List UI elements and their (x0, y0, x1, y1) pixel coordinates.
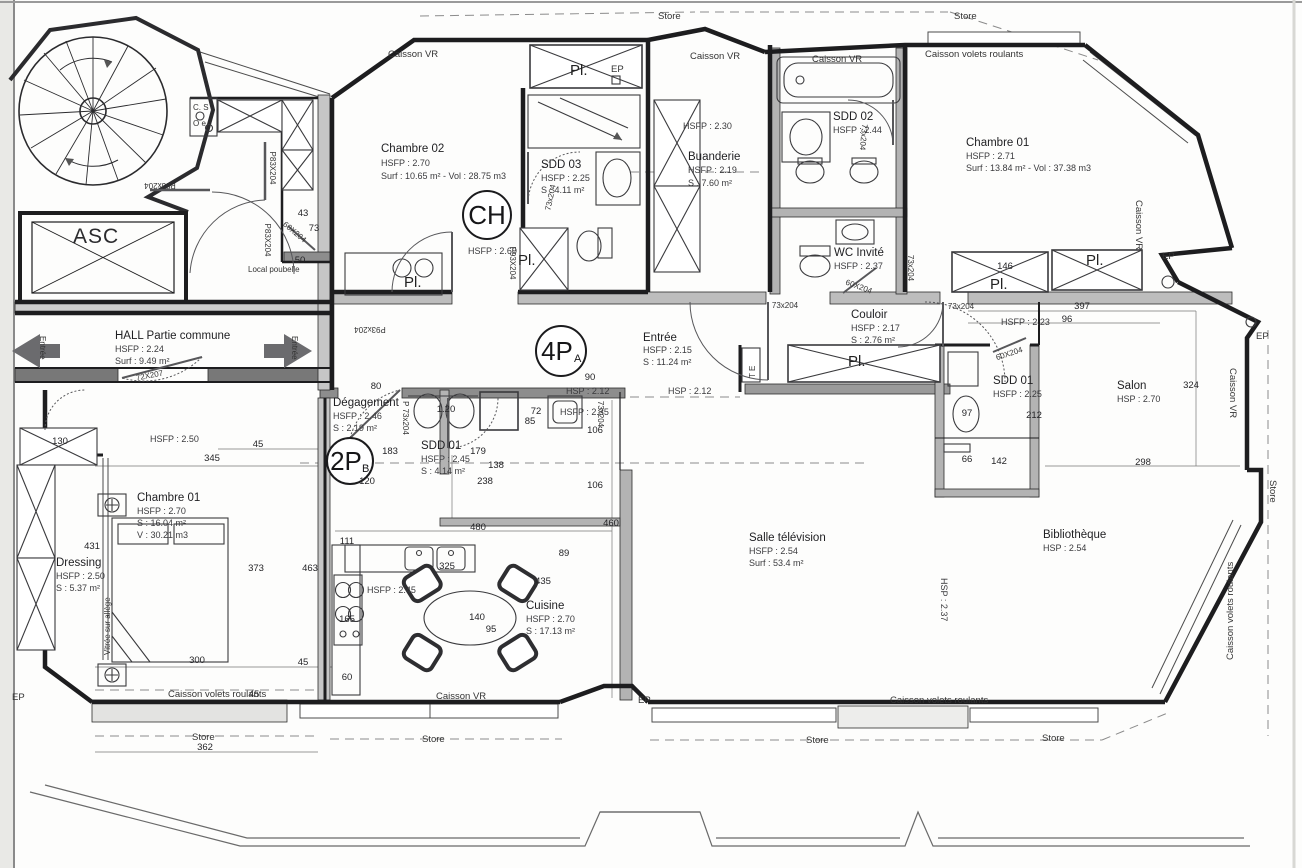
room-entree: Entrée HSFP : 2.15 S : 11.24 m² (643, 332, 692, 367)
ep-label: EP (1162, 251, 1175, 262)
dim: 212 (1026, 410, 1042, 421)
door-label: P83X204 (268, 152, 277, 185)
room-bibliotheque: Bibliothèque HSP : 2.54 (1043, 529, 1106, 553)
room-info: HSFP : 2.45 (421, 454, 470, 464)
store-label: Store (658, 11, 681, 22)
walls (15, 29, 1261, 702)
room-info: Surf : 10.65 m² - Vol : 28.75 m3 (381, 171, 506, 181)
dim: 60 (342, 672, 353, 683)
vitree-label: Vitrée sur allège (103, 597, 112, 655)
room-info: HSFP : 2.70 (137, 506, 186, 516)
entree-arrow-right-icon (264, 334, 312, 368)
store-label: Store (192, 732, 215, 743)
floor-plan: CH 4P A 2P B Chambre 02 HSFP : 2.70 Surf… (0, 0, 1302, 868)
stove (334, 575, 362, 645)
room-info: HSFP : 2.25 (541, 173, 590, 183)
store-label: Store (1267, 480, 1278, 503)
store-label: Store (806, 735, 829, 746)
room-sdd-01-left: SDD 01 HSFP : 2.45 S : 4.14 m² (421, 440, 470, 476)
caisson-volets-label: Caisson volets roulants (1225, 562, 1236, 660)
local-poubelle-label: Local poubelle (248, 265, 300, 274)
room-info: HSFP : 2.46 (333, 411, 382, 421)
ep-label: EP (638, 695, 651, 706)
dim: 138 (488, 460, 504, 471)
door-label: P 73x204 (401, 401, 410, 435)
dim: 362 (197, 742, 213, 753)
dim: 45 (298, 657, 309, 668)
dim: 463 (302, 563, 318, 574)
dim: 298 (1135, 457, 1151, 468)
room-salon: Salon HSP : 2.70 (1117, 380, 1160, 404)
dim: 480 (470, 522, 486, 533)
dim: 106 (587, 480, 603, 491)
dim: 90 (585, 372, 596, 383)
entree-arrow-left-icon (12, 334, 60, 368)
door-label: P83x204 (144, 181, 176, 190)
wc-invite-bowl (800, 255, 830, 277)
door-label: 60X204 (995, 345, 1025, 362)
dim: 238 (477, 476, 493, 487)
room-info: Surf : 53.4 m² (749, 558, 804, 568)
room-info: HSFP : 2.70 (526, 614, 575, 624)
room-info: HSFP : 2.24 (115, 344, 164, 354)
room-info: V : 30.21 m3 (137, 530, 188, 540)
closet-label: Pl. (1086, 252, 1104, 269)
entree-arrow-left-label: Entrée (38, 336, 47, 360)
badge-2p: 2P (330, 446, 362, 476)
cs-label: C. S (193, 103, 209, 112)
room-chambre-01-left: Chambre 01 HSFP : 2.70 S : 16.04 m² V : … (137, 492, 200, 540)
room-info: S : 11.24 m² (643, 357, 691, 367)
room-cuisine: Cuisine HSFP : 2.70 S : 17.13 m² (526, 600, 575, 636)
annotations: Store Store Store Store Store Store Stor… (12, 11, 1278, 746)
room-info: HSFP : 2.19 (688, 165, 737, 175)
room-info: S : 7.60 m² (688, 178, 732, 188)
oe-label: O e (193, 119, 206, 128)
dim: 142 (991, 456, 1007, 467)
ep-label: EP (1256, 331, 1269, 342)
closet-label: Pl. (518, 252, 536, 269)
room-chambre-01-top: Chambre 01 HSFP : 2.71 Surf : 13.84 m² -… (966, 137, 1091, 173)
room-info: HSFP : 2.25 (993, 389, 1042, 399)
room-info: Surf : 13.84 m² - Vol : 37.38 m3 (966, 163, 1091, 173)
balcony-outline (30, 785, 1250, 846)
badge-ch: CH (468, 200, 506, 230)
caisson-volets-label: Caisson volets roulants (890, 695, 988, 706)
room-info: HSFP : 2.70 (381, 158, 430, 168)
spiral-staircase (10, 18, 213, 212)
room-name: Entrée (643, 332, 677, 344)
store-label: Store (1042, 733, 1065, 744)
dim: 146 (997, 261, 1013, 272)
door-label: 73x204 (772, 301, 799, 310)
te-label: T E (748, 366, 757, 378)
closet-label: Pl. (404, 274, 422, 291)
room-info: HSFP : 2.50 (56, 571, 105, 581)
room-name: SDD 01 (421, 440, 461, 452)
dim: 165 (339, 614, 355, 625)
dim: 460 (603, 518, 619, 529)
ep-label: EP (12, 692, 25, 703)
closet-label: Pl. (848, 353, 866, 370)
closet-label: Pl. (990, 276, 1008, 293)
height-note: HSFP : 2.45 (367, 585, 416, 595)
door-label: P93X204 (508, 247, 517, 280)
walls-poche (15, 48, 1232, 728)
dim: 300 (189, 655, 205, 666)
room-name: SDD 02 (833, 111, 873, 123)
dim: 140 (469, 612, 485, 623)
room-name: Couloir (851, 309, 888, 321)
door-label: 73x204 (906, 255, 915, 282)
door-label: P83X204 (263, 224, 272, 257)
room-info: HSFP : 2.44 (833, 125, 882, 135)
room-info: S : 4.14 m² (421, 466, 465, 476)
closet-label: Pl. (570, 62, 588, 79)
dim: 345 (204, 453, 220, 464)
height-note: HSFP : 2.30 (683, 121, 732, 131)
height-note: HSP : 2.12 (566, 386, 609, 396)
elevator-label: ASC (73, 225, 119, 248)
room-name: Chambre 01 (137, 492, 200, 504)
door-label: 73x204 (596, 401, 605, 428)
room-dressing: Dressing HSFP : 2.50 S : 5.37 m² (56, 557, 105, 593)
room-name: WC Invité (834, 247, 884, 259)
caisson-volets-label: Caisson volets roulants (168, 689, 266, 700)
dim: 435 (535, 576, 551, 587)
room-info: S : 2.19 m² (333, 423, 377, 433)
room-info: HSFP : 2.71 (966, 151, 1015, 161)
room-degagement: Dégagement HSFP : 2.46 S : 2.19 m² (333, 397, 400, 433)
caisson-vr-label: Caisson VR (1227, 368, 1238, 418)
store-label: Store (422, 734, 445, 745)
store-label: Store (954, 11, 977, 22)
room-name: Dégagement (333, 397, 400, 409)
dim: 397 (1074, 301, 1090, 312)
caisson-vr-label: Caisson VR (388, 49, 438, 60)
room-name: Chambre 01 (966, 137, 1029, 149)
room-info: Surf : 9.49 m² (115, 356, 170, 366)
shower (528, 95, 640, 148)
dim: 325 (439, 561, 455, 572)
dim: 95 (486, 624, 497, 635)
room-info: HSFP : 2.37 (834, 261, 883, 271)
dim: 85 (525, 416, 536, 427)
height-note: HSFP : 2.50 (150, 434, 199, 444)
room-name: Salle télévision (749, 532, 826, 544)
room-name: HALL Partie commune (115, 330, 230, 342)
caisson-vr-label: Caisson VR (1133, 200, 1144, 250)
caisson-vr-label: Caisson VR (812, 54, 862, 65)
dim: 324 (1183, 380, 1199, 391)
dim: 66 (962, 454, 973, 465)
badge-2p-sub: B (362, 463, 369, 475)
door-label: 60X204 (281, 220, 308, 245)
room-couloir: Couloir HSFP : 2.17 S : 2.76 m² (851, 309, 900, 345)
room-info: HSFP : 2.54 (749, 546, 798, 556)
room-name: Chambre 02 (381, 143, 444, 155)
room-name: Cuisine (526, 600, 564, 612)
dim: 43 (298, 208, 309, 219)
dim: 96 (1062, 314, 1073, 325)
dim: 183 (382, 446, 398, 457)
room-name: Buanderie (688, 151, 740, 163)
room-buanderie: Buanderie HSFP : 2.19 S : 7.60 m² (688, 151, 740, 188)
dim: 373 (248, 563, 264, 574)
dim: 130 (52, 436, 68, 447)
dim: 80 (371, 381, 382, 392)
caisson-volets-label: Caisson volets roulants (925, 49, 1023, 60)
dim: 111 (340, 536, 354, 547)
room-info: HSP : 2.54 (1043, 543, 1086, 553)
dim: 1.20 (437, 404, 456, 415)
room-chambre-02: Chambre 02 HSFP : 2.70 Surf : 10.65 m² -… (381, 143, 506, 181)
height-note: HSFP : 2.23 (1001, 317, 1050, 327)
dim: 120 (359, 476, 375, 487)
room-info: HSFP : 2.15 (643, 345, 692, 355)
room-info: S : 5.37 m² (56, 583, 100, 593)
room-sdd-02: SDD 02 HSFP : 2.44 (833, 111, 882, 135)
room-salle-television: Salle télévision HSFP : 2.54 Surf : 53.4… (749, 532, 826, 568)
room-info: S : 17.13 m² (526, 626, 575, 636)
dim: 45 (253, 439, 264, 450)
room-info: HSFP : 2.17 (851, 323, 900, 333)
room-name: SDD 01 (993, 375, 1033, 387)
dim: 431 (84, 541, 100, 552)
room-info: S : 16.04 m² (137, 518, 186, 528)
room-hall: HALL Partie commune HSFP : 2.24 Surf : 9… (115, 330, 230, 366)
caisson-vr-label: Caisson VR (436, 691, 486, 702)
height-note: HSP : 2.12 (668, 386, 711, 396)
height-note: HSP : 2.37 (939, 578, 949, 621)
dim: 179 (470, 446, 486, 457)
room-info: S : 2.76 m² (851, 335, 895, 345)
dim: 73 (309, 223, 320, 234)
door-label: 72X207 (135, 368, 164, 382)
badge-4p-sub: A (574, 353, 582, 365)
room-name: SDD 03 (541, 159, 581, 171)
floor-plan-canvas: CH 4P A 2P B Chambre 02 HSFP : 2.70 Surf… (0, 0, 1302, 868)
room-name: Bibliothèque (1043, 529, 1106, 541)
entree-arrow-right-label: Entrée (290, 336, 299, 360)
badge-4p: 4P (541, 336, 573, 366)
dim: 89 (559, 548, 570, 559)
dim: 97 (962, 408, 973, 419)
room-wc-invite: WC Invité HSFP : 2.37 (834, 247, 884, 271)
door-label: 73x204 (948, 302, 975, 311)
room-info: HSP : 2.70 (1117, 394, 1160, 404)
caisson-vr-label: Caisson VR (690, 51, 740, 62)
room-name: Salon (1117, 380, 1146, 392)
room-name: Dressing (56, 557, 101, 569)
door-label: P93x204 (354, 325, 386, 334)
ep-label: EP (611, 64, 624, 75)
